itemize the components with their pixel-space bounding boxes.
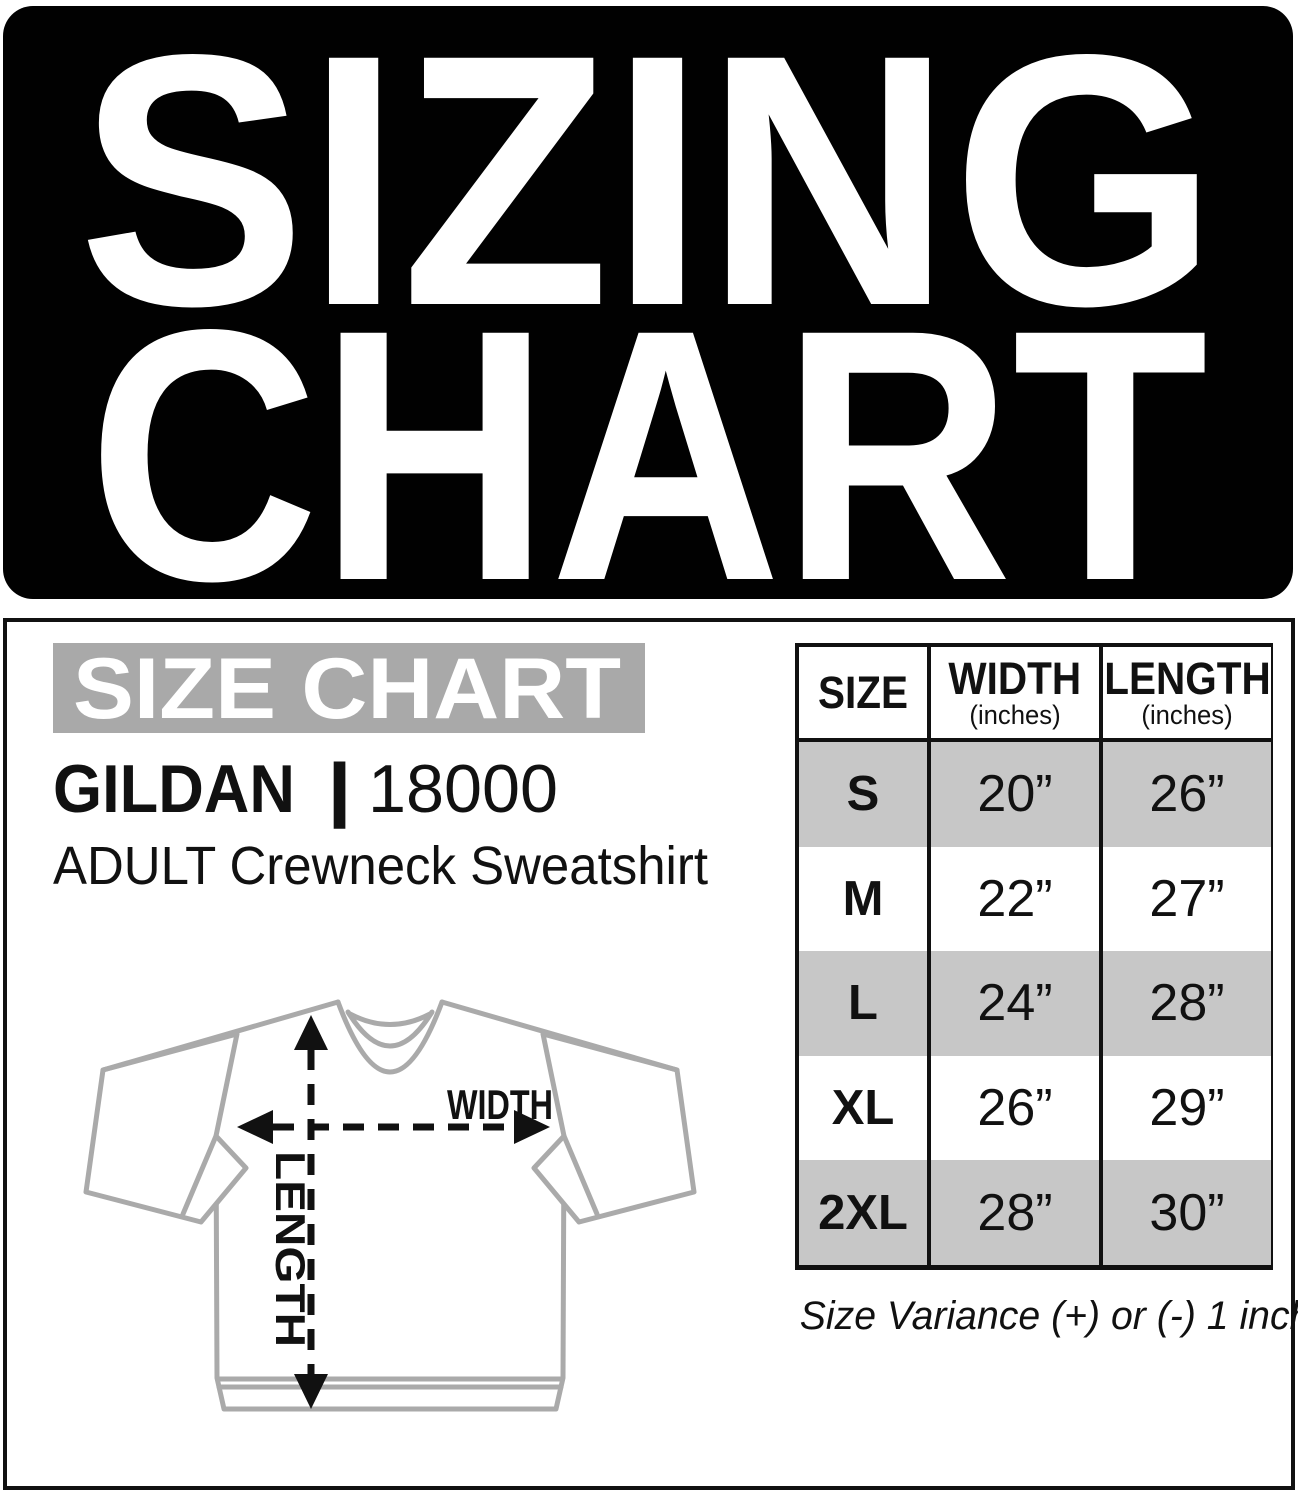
length-value: 30” [1149, 1183, 1224, 1243]
size-chart-bar: SIZE CHART [53, 643, 645, 733]
table-cell: S [799, 742, 927, 847]
table-header-cell: WIDTH (inches) [931, 647, 1099, 742]
table-header-cell: SIZE [799, 647, 927, 742]
sweatshirt-diagram: WIDTH LENGTH [40, 975, 780, 1455]
header-size: SIZE [818, 671, 908, 715]
table-cell: M [799, 847, 927, 952]
header-width: WIDTH [949, 657, 1082, 701]
table-cell: 28” [931, 1160, 1099, 1265]
width-value: 28” [977, 1183, 1052, 1243]
collar-outer-arc [338, 1002, 442, 1072]
table-cell: 24” [931, 951, 1099, 1056]
size-variance-note: Size Variance (+) or (-) 1 inch [800, 1294, 1268, 1339]
product-name: ADULT Crewneck Sweatshirt [53, 836, 708, 896]
length-value: 27” [1149, 869, 1224, 929]
size-table: SIZE WIDTH (inches) LENGTH (inches) S 20… [795, 643, 1273, 1270]
table-cell: XL [799, 1056, 927, 1161]
brand-name: GILDAN [53, 751, 295, 827]
sizing-chart-graphic: SIZING CHART SIZE CHART GILDAN | 18000 A… [0, 0, 1298, 1493]
table-cell: 2XL [799, 1160, 927, 1265]
banner: SIZING CHART [3, 6, 1293, 599]
model-number: 18000 [368, 751, 558, 827]
header-length-unit: (inches) [1141, 701, 1232, 729]
length-value: 28” [1149, 973, 1224, 1033]
table-cell: 26” [931, 1056, 1099, 1161]
table-cell: 29” [1103, 1056, 1271, 1161]
banner-title: SIZING CHART [3, 6, 1293, 599]
table-cell: 26” [1103, 742, 1271, 847]
length-value: 26” [1149, 764, 1224, 824]
table-cell: 22” [931, 847, 1099, 952]
size-chart-bar-title: SIZE CHART [73, 643, 621, 733]
size-label: L [848, 975, 878, 1031]
width-value: 22” [977, 869, 1052, 929]
header-width-unit: (inches) [969, 701, 1060, 729]
collar-back-arc [350, 1014, 430, 1025]
banner-line2: CHART [88, 255, 1208, 599]
separator-bar: | [330, 751, 349, 828]
table-cell: 27” [1103, 847, 1271, 952]
left-sleeve [86, 1034, 246, 1222]
right-sleeve [534, 1034, 694, 1222]
size-label: M [843, 871, 884, 927]
table-cell: 30” [1103, 1160, 1271, 1265]
table-cell: 20” [931, 742, 1099, 847]
size-label: 2XL [818, 1185, 908, 1241]
header-length: LENGTH [1104, 657, 1271, 701]
table-header-cell: LENGTH (inches) [1103, 647, 1271, 742]
table-cell: L [799, 951, 927, 1056]
brand-line: GILDAN | 18000 [53, 750, 713, 830]
length-dimension-label: LENGTH [267, 1151, 314, 1347]
width-value: 20” [977, 764, 1052, 824]
size-label: XL [832, 1080, 895, 1136]
width-dimension-label: WIDTH [447, 1081, 553, 1128]
length-value: 29” [1149, 1078, 1224, 1138]
table-cell: 28” [1103, 951, 1271, 1056]
product-line: ADULT Crewneck Sweatshirt [53, 832, 733, 896]
size-label: S [847, 766, 880, 822]
width-value: 24” [977, 973, 1052, 1033]
width-value: 26” [977, 1078, 1052, 1138]
length-arrow-up-head [294, 1015, 328, 1050]
